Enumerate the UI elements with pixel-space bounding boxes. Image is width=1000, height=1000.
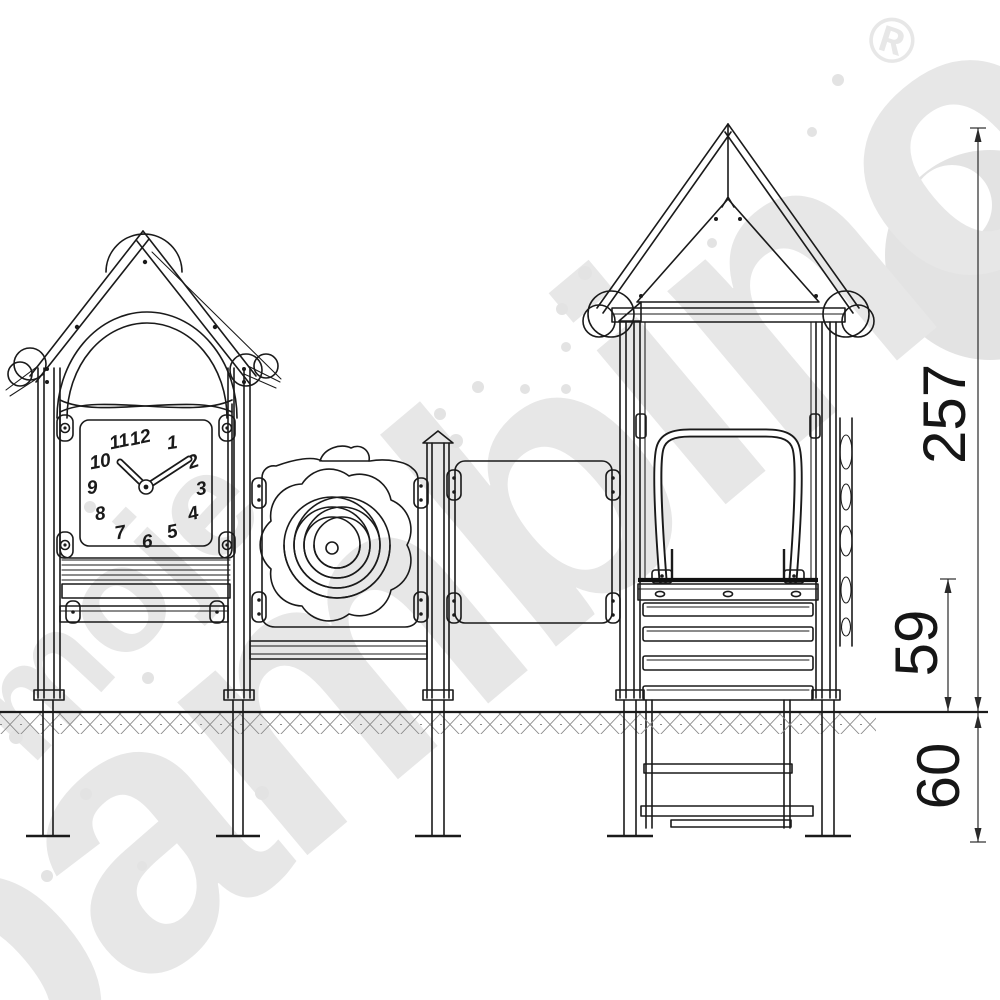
brand-watermark: bambino moje ® — [0, 0, 1000, 1000]
dimension-foundation-depth-label: 60 — [905, 743, 972, 810]
clock-numeral-10: 10 — [88, 450, 113, 474]
ground-hatch-band — [0, 713, 876, 734]
dimension-foundation-depth: 60 — [905, 713, 986, 842]
playhouse-arch — [57, 312, 237, 418]
drawing-canvas: bambino moje ® — [0, 0, 1000, 1000]
dimension-total-height-label: 257 — [911, 364, 978, 464]
playground-technical-drawing: bambino moje ® — [0, 0, 1000, 1000]
roof-eave-cap-back-right — [254, 354, 278, 378]
dimension-platform-height-label: 59 — [883, 610, 950, 677]
dimension-platform-height: 59 — [883, 579, 956, 711]
playhouse-roof — [6, 231, 281, 396]
roof-eave-cap-back-left — [8, 362, 32, 386]
clock-numeral-12: 12 — [128, 426, 153, 451]
clock-numeral-9: 9 — [86, 477, 99, 499]
